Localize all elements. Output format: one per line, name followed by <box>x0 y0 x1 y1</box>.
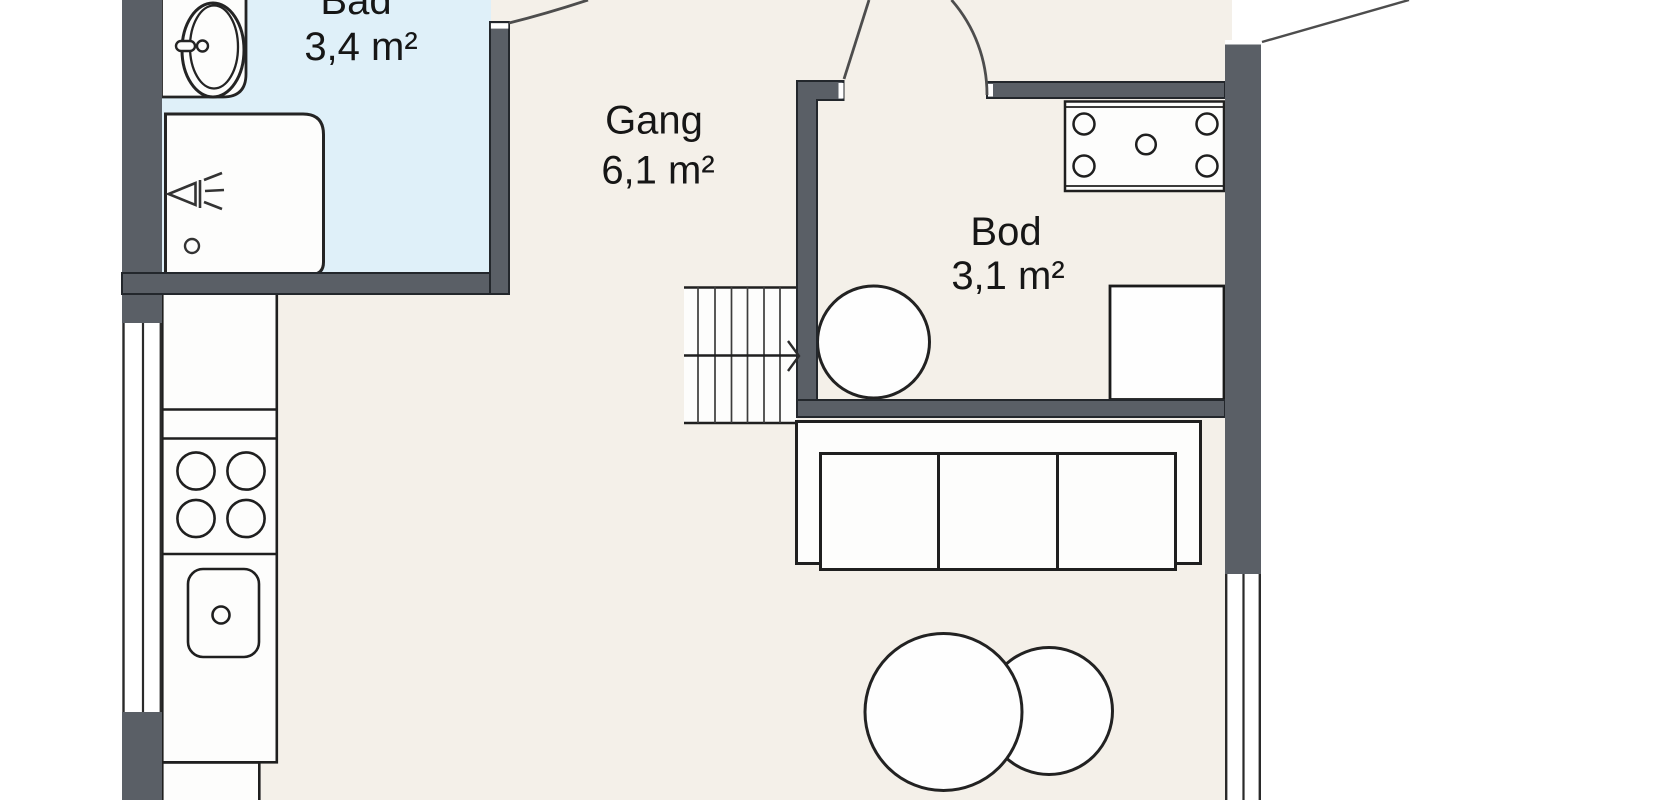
svg-text:Bod: Bod <box>970 210 1041 254</box>
svg-text:Gang: Gang <box>605 99 703 143</box>
svg-text:Bad: Bad <box>320 0 391 23</box>
svg-text:6,1 m²: 6,1 m² <box>601 149 714 193</box>
svg-text:3,1 m²: 3,1 m² <box>951 254 1064 298</box>
svg-text:3,4 m²: 3,4 m² <box>304 25 417 69</box>
